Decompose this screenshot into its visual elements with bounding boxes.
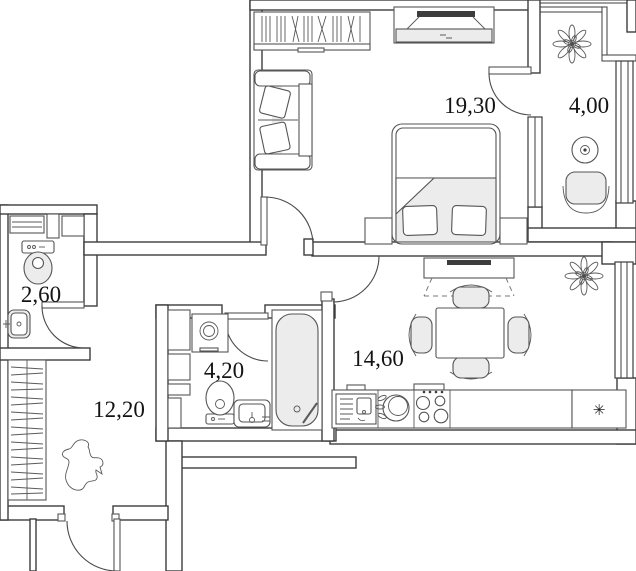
balcony-furniture <box>553 25 609 213</box>
dining-chair-top <box>450 285 492 308</box>
wall-segment <box>30 519 36 571</box>
wall-segment <box>304 239 313 255</box>
sofa <box>254 70 312 170</box>
wall-segment <box>330 430 636 444</box>
bathroom-fixtures <box>168 310 322 430</box>
wall-segment <box>0 348 90 360</box>
wall-segment <box>178 457 356 468</box>
bath-sink <box>234 400 270 427</box>
hall-wardrobe <box>8 360 46 500</box>
wall-segment <box>528 0 540 73</box>
dog-figure <box>62 440 103 490</box>
washing-machine <box>192 314 228 352</box>
tv-stand <box>394 7 494 43</box>
wall-segment <box>0 506 64 520</box>
wall-segment <box>602 55 636 61</box>
wall-segment <box>616 201 636 230</box>
bath-cabinets <box>168 310 190 428</box>
window-kitchen-right <box>615 262 633 378</box>
dining-chair-right <box>508 314 531 356</box>
room-label-balcony: 4,00 <box>569 93 609 118</box>
bed <box>392 124 500 244</box>
kitchen-furniture: ✳ <box>332 257 626 428</box>
wall-segment <box>528 228 636 242</box>
balcony-chair <box>563 172 609 213</box>
hallway-furniture <box>8 360 103 500</box>
window-balcony-right <box>616 61 633 203</box>
wall-segment <box>84 242 266 255</box>
wall-segment <box>84 214 97 306</box>
wall-segment <box>602 7 607 59</box>
nightstand-right <box>500 218 527 244</box>
kitchen-door <box>333 256 379 302</box>
bathroom-door <box>225 313 268 361</box>
room-label-bathroom: 4,20 <box>204 358 244 383</box>
bath-toilet <box>206 381 234 424</box>
nightstand-left <box>365 218 392 244</box>
wall-segment <box>113 506 168 520</box>
bathtub <box>272 310 322 430</box>
fridge-snowflake-icon: ✳ <box>593 401 606 419</box>
door-frame-mark <box>321 292 332 301</box>
room-label-toilet: 2,60 <box>21 282 61 307</box>
kitchen-counter <box>332 384 572 428</box>
room-label-bedroom: 19,30 <box>444 93 496 118</box>
wall-segment <box>0 205 8 520</box>
walls <box>0 0 636 571</box>
room-label-hallway: 12,20 <box>93 397 145 422</box>
dishwasher <box>336 394 376 424</box>
dining-table <box>436 308 504 358</box>
wall-segment <box>627 0 636 32</box>
plant-icon <box>565 257 603 295</box>
window-bedroom-balcony <box>528 117 542 207</box>
dining-chair-left <box>409 314 432 356</box>
balcony-table <box>572 137 598 163</box>
wc-toilet <box>22 241 54 284</box>
plant-icon <box>553 25 591 63</box>
wall-segment <box>602 242 636 264</box>
floor-plan: ✳ 19,30 4,00 2,60 4,20 12,20 14,60 <box>0 0 636 571</box>
fridge: ✳ <box>572 390 626 428</box>
wall-segment <box>536 7 604 12</box>
wardrobe <box>254 12 370 52</box>
bedroom-door <box>261 197 313 245</box>
wall-segment <box>0 205 97 214</box>
wall-segment <box>538 0 636 3</box>
wc-shelf <box>10 214 84 238</box>
dining-chair-bottom <box>450 357 492 379</box>
toilet-door <box>42 302 84 348</box>
bedroom-furniture <box>254 7 527 244</box>
wall-segment <box>156 305 168 441</box>
entrance-door <box>58 514 120 571</box>
room-label-kitchen: 14,60 <box>352 346 404 371</box>
